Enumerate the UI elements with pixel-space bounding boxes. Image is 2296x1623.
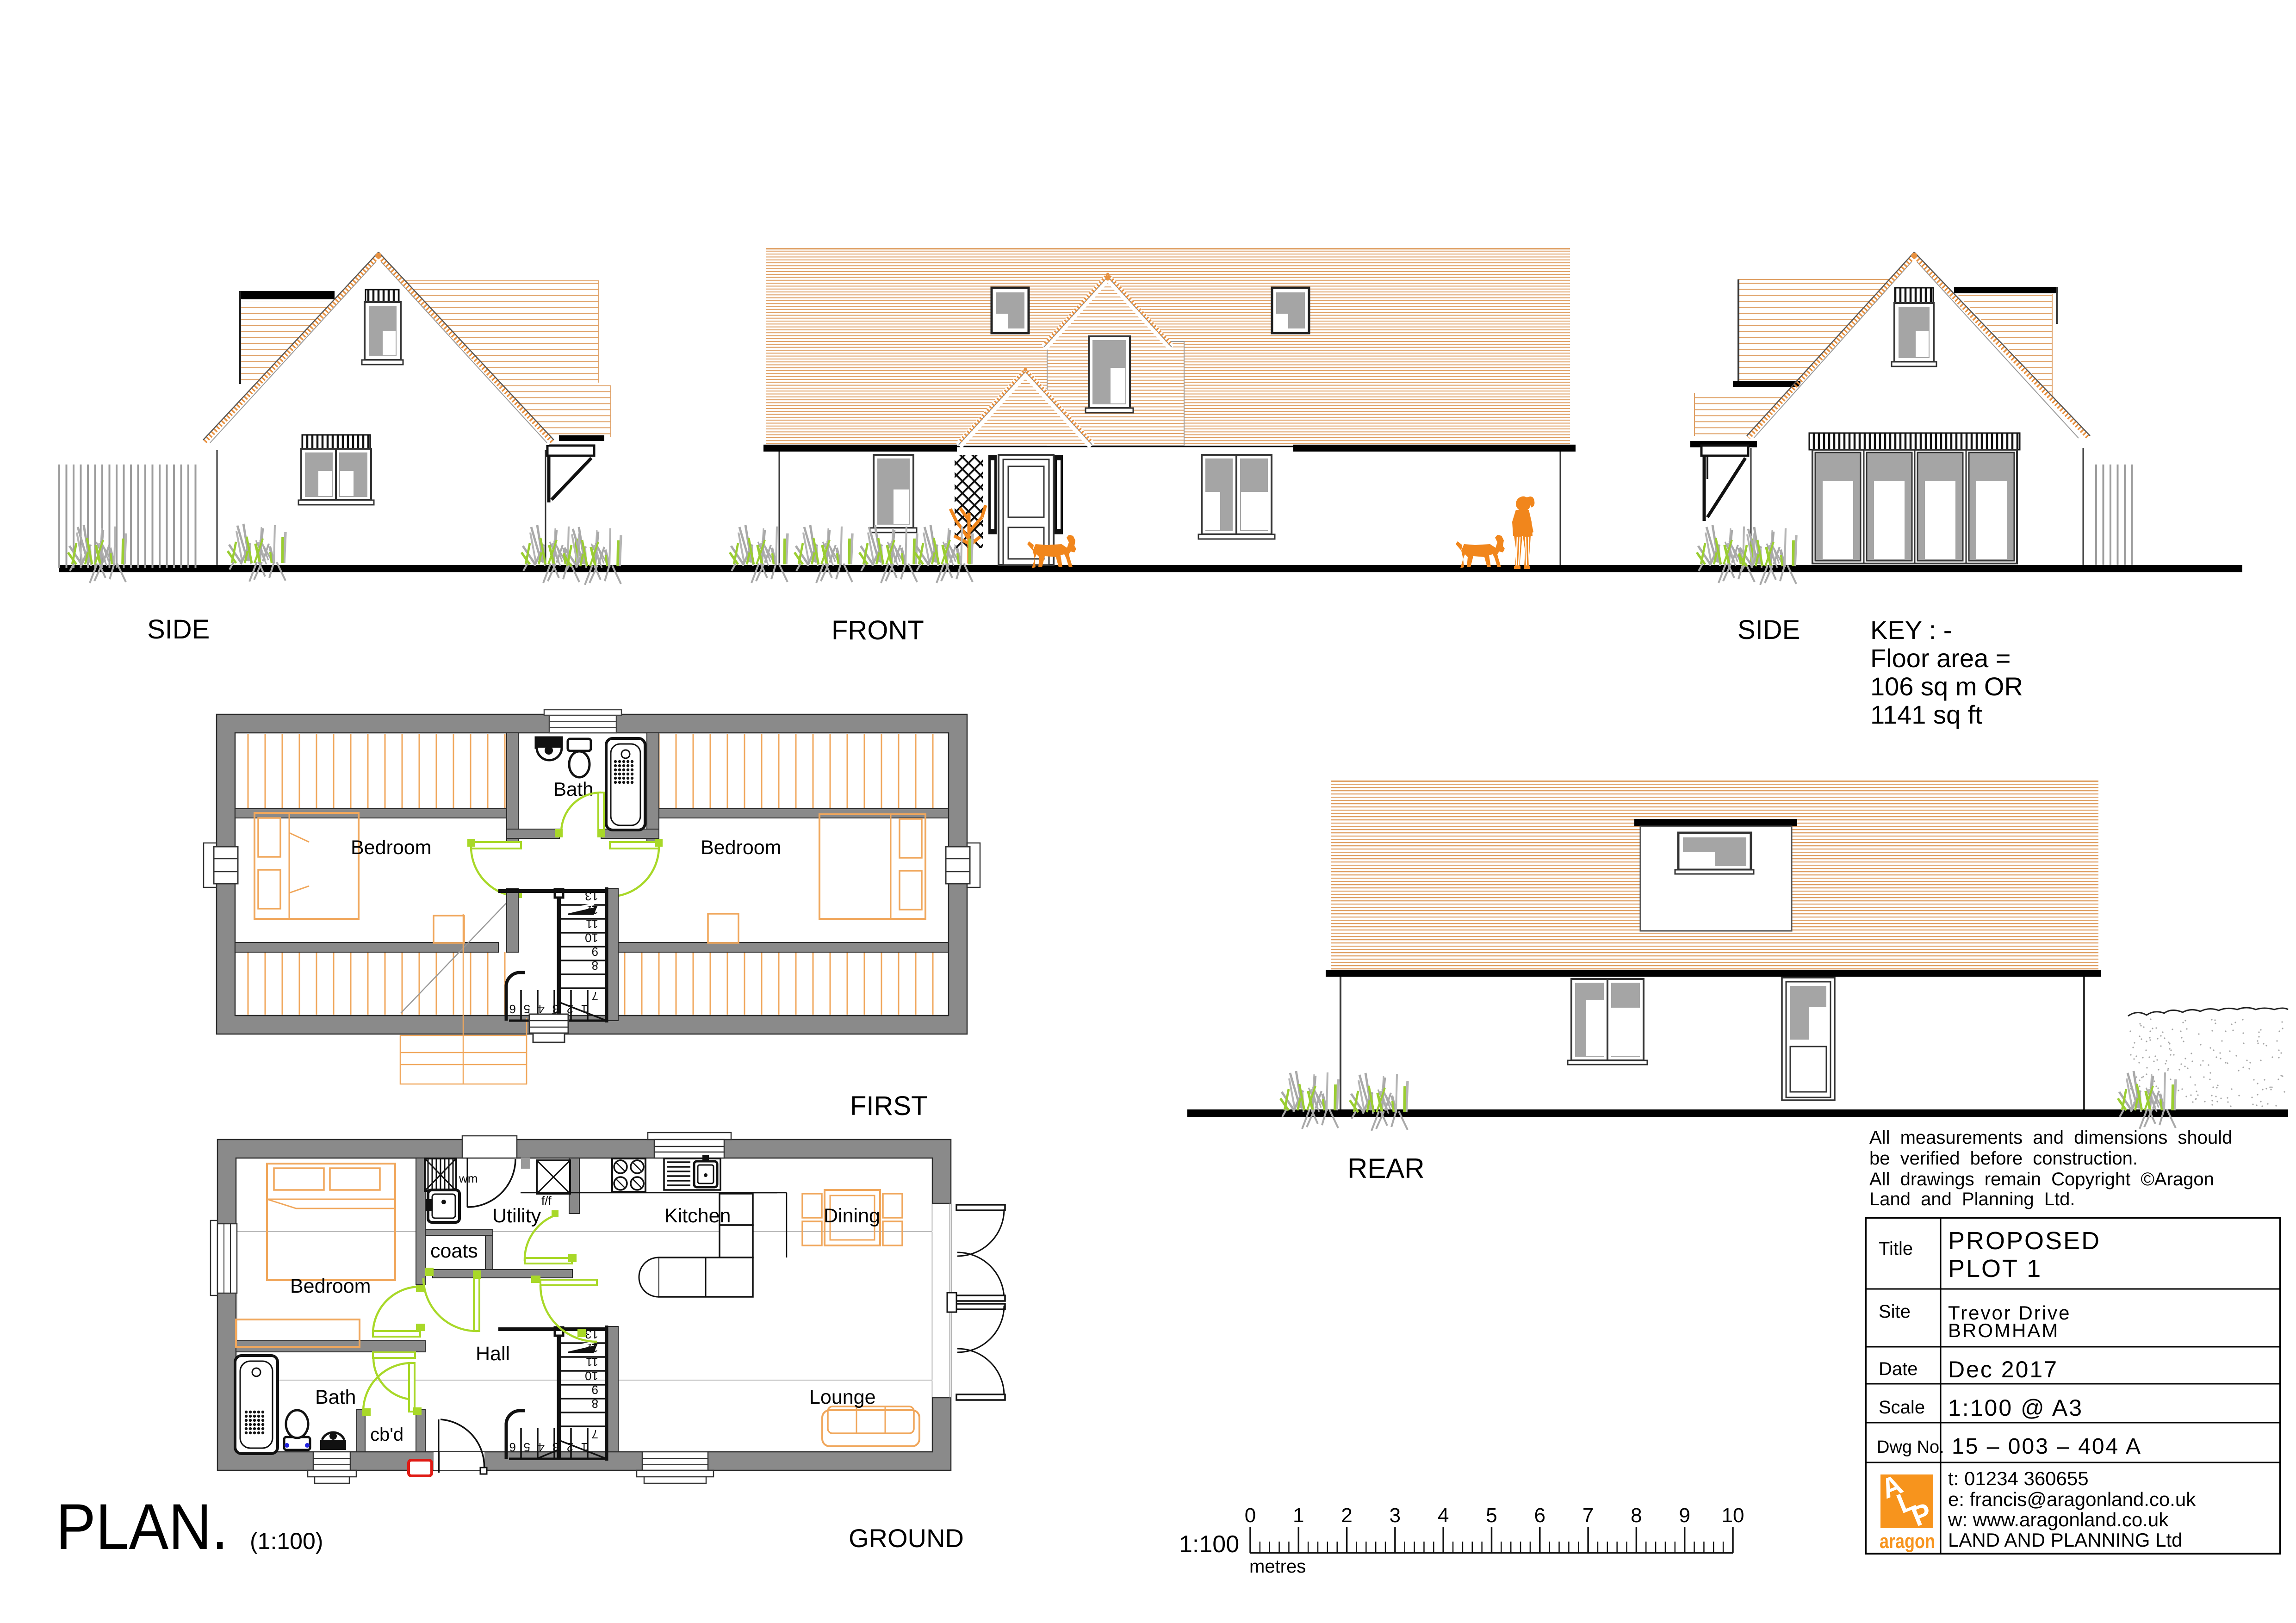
svg-text:5: 5 [1486, 1504, 1497, 1527]
svg-text:7: 7 [1582, 1504, 1594, 1527]
svg-text:be verified before constructio: be verified before construction. [1869, 1148, 2138, 1169]
svg-text:1:100: 1:100 [1179, 1531, 1239, 1558]
svg-text:Title: Title [1879, 1239, 1913, 1259]
svg-text:10: 10 [585, 931, 598, 945]
svg-text:coats: coats [430, 1240, 478, 1262]
svg-text:w: www.aragonland.co.uk: w: www.aragonland.co.uk [1948, 1509, 2169, 1530]
svg-text:Bath: Bath [553, 778, 593, 800]
svg-text:7: 7 [592, 989, 598, 1003]
svg-text:6: 6 [509, 1002, 516, 1016]
svg-text:1:100 @ A3: 1:100 @ A3 [1948, 1395, 2083, 1421]
svg-text:11: 11 [586, 1355, 598, 1369]
svg-text:Hall: Hall [476, 1343, 510, 1365]
svg-text:metres: metres [1249, 1556, 1306, 1577]
svg-text:Dwg No.: Dwg No. [1877, 1437, 1944, 1457]
svg-text:All drawings remain Copyright: All drawings remain Copyright ©Aragon [1869, 1169, 2214, 1189]
svg-text:1141 sq ft: 1141 sq ft [1870, 700, 1982, 729]
svg-text:e: francis@aragonland.co.uk: e: francis@aragonland.co.uk [1948, 1488, 2196, 1510]
svg-text:(1:100): (1:100) [250, 1528, 323, 1554]
svg-text:REAR: REAR [1347, 1153, 1425, 1184]
svg-text:Utility: Utility [492, 1205, 541, 1227]
svg-text:9: 9 [592, 945, 598, 959]
svg-text:FIRST: FIRST [850, 1091, 928, 1121]
svg-text:1: 1 [581, 1440, 588, 1454]
svg-text:cb'd: cb'd [370, 1425, 403, 1445]
svg-text:11: 11 [586, 917, 598, 931]
svg-text:4: 4 [1438, 1504, 1449, 1527]
svg-text:Dining: Dining [824, 1205, 880, 1227]
svg-text:8: 8 [592, 1397, 598, 1411]
svg-text:Lounge: Lounge [809, 1386, 876, 1408]
svg-text:10: 10 [1722, 1504, 1744, 1527]
svg-text:LAND AND PLANNING Ltd: LAND AND PLANNING Ltd [1948, 1529, 2183, 1551]
svg-text:0: 0 [1245, 1504, 1256, 1527]
svg-text:Kitchen: Kitchen [664, 1205, 731, 1227]
svg-text:1: 1 [581, 1002, 588, 1016]
svg-text:SIDE: SIDE [147, 614, 210, 644]
svg-text:5: 5 [524, 1440, 530, 1454]
svg-text:4: 4 [538, 1440, 545, 1454]
svg-text:Bath: Bath [315, 1386, 356, 1408]
svg-text:15 – 003 – 404 A: 15 – 003 – 404 A [1952, 1434, 2142, 1459]
svg-text:8: 8 [1631, 1504, 1642, 1527]
svg-text:wm: wm [459, 1171, 478, 1185]
svg-text:PROPOSED: PROPOSED [1948, 1227, 2101, 1255]
svg-text:9: 9 [1679, 1504, 1690, 1527]
svg-text:All measurements and dimension: All measurements and dimensions should [1869, 1127, 2232, 1148]
svg-text:106 sq m OR: 106 sq m OR [1870, 672, 2023, 701]
svg-text:10: 10 [585, 1369, 598, 1383]
svg-text:Floor area =: Floor area = [1870, 644, 2011, 673]
svg-text:3: 3 [552, 1440, 559, 1454]
svg-text:3: 3 [1390, 1504, 1401, 1527]
svg-text:PLAN.: PLAN. [56, 1490, 228, 1563]
svg-text:Scale: Scale [1879, 1397, 1925, 1418]
svg-text:6: 6 [1534, 1504, 1545, 1527]
svg-text:Date: Date [1879, 1359, 1918, 1379]
svg-text:Dec 2017: Dec 2017 [1948, 1357, 2058, 1382]
svg-text:Bedroom: Bedroom [351, 836, 431, 859]
svg-text:PLOT 1: PLOT 1 [1948, 1255, 2042, 1282]
svg-text:KEY : -: KEY : - [1870, 615, 1952, 644]
svg-text:13: 13 [585, 1327, 598, 1341]
svg-text:6: 6 [509, 1440, 516, 1454]
svg-text:Bedroom: Bedroom [290, 1275, 371, 1297]
svg-text:7: 7 [592, 1427, 598, 1441]
svg-text:1: 1 [1293, 1504, 1304, 1527]
svg-text:SIDE: SIDE [1738, 615, 1800, 645]
svg-text:2: 2 [1341, 1504, 1352, 1527]
svg-text:Site: Site [1879, 1301, 1911, 1322]
svg-text:Bedroom: Bedroom [701, 836, 781, 859]
svg-text:13: 13 [585, 889, 598, 903]
svg-text:Land and Planning Ltd.: Land and Planning Ltd. [1869, 1189, 2075, 1209]
svg-text:2: 2 [567, 1440, 573, 1454]
svg-text:GROUND: GROUND [849, 1524, 964, 1553]
svg-text:FRONT: FRONT [832, 615, 924, 645]
svg-text:aragon: aragon [1880, 1530, 1935, 1553]
svg-text:BROMHAM: BROMHAM [1948, 1319, 2059, 1341]
svg-text:f/f: f/f [541, 1194, 552, 1208]
svg-text:9: 9 [592, 1383, 598, 1397]
svg-text:t: 01234 360655: t: 01234 360655 [1948, 1468, 2089, 1489]
svg-text:8: 8 [592, 959, 598, 973]
